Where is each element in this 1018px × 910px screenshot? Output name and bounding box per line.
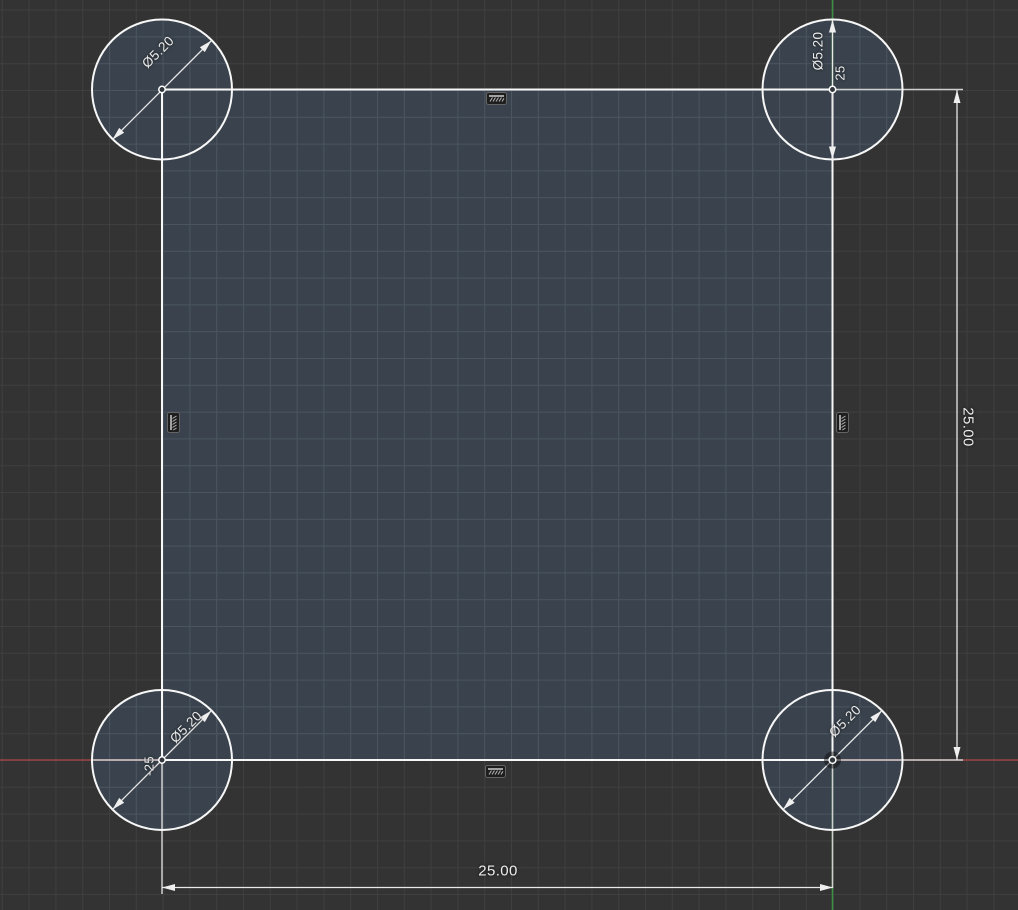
horizontal-constraint-icon[interactable]: [485, 765, 506, 778]
width-dimension[interactable]: 25.00: [478, 863, 518, 880]
vertical-constraint-icon[interactable]: [836, 412, 849, 433]
vertical-constraint-icon[interactable]: [167, 412, 180, 433]
corner-y-dimension[interactable]: 25: [833, 65, 848, 80]
sketch-viewport: Ø5.20 Ø5.20 25 Ø5.20 -25 Ø5.20 25.00 25.…: [0, 0, 1018, 910]
horizontal-constraint-icon[interactable]: [486, 92, 507, 105]
height-dimension[interactable]: 25.00: [960, 407, 977, 447]
diameter-dimension-top-right[interactable]: Ø5.20: [811, 32, 826, 71]
corner-x-dimension[interactable]: -25: [142, 756, 157, 776]
